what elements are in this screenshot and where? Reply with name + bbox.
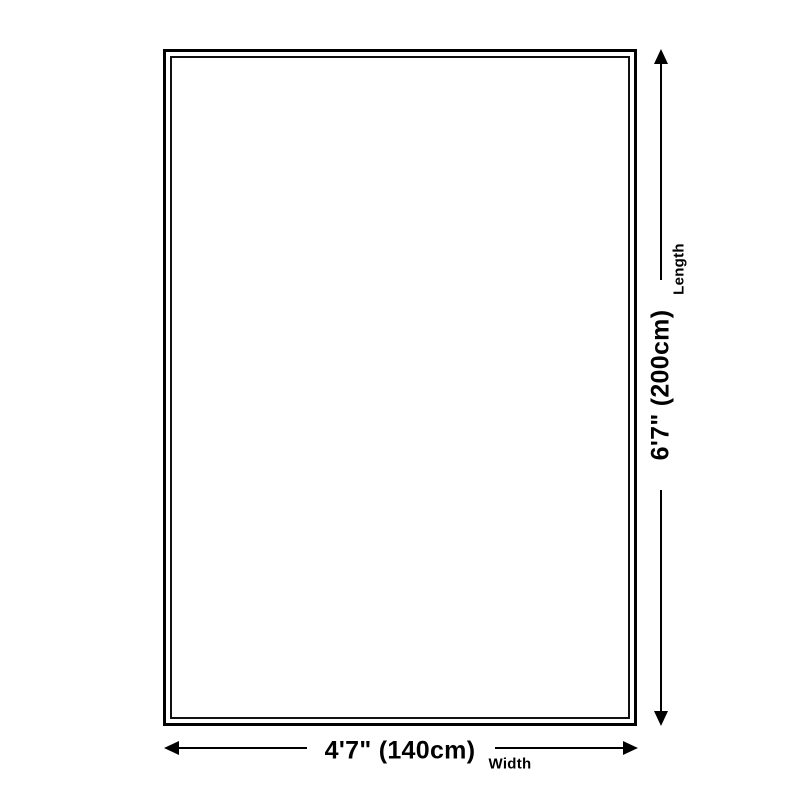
length-label: Length [671, 243, 688, 295]
arrow-right-icon [623, 741, 638, 755]
arrow-down-icon [654, 711, 668, 726]
product-outline-outer [163, 49, 637, 726]
length-value: 6'7" (200cm) [647, 310, 676, 461]
length-dimension-line-bottom [660, 490, 663, 712]
size-diagram: Length 6'7" (200cm) 4'7" (140cm) Width [0, 0, 800, 800]
length-dimension-line-top [660, 62, 663, 280]
arrow-left-icon [164, 741, 179, 755]
width-dimension-line-right [495, 747, 624, 750]
product-outline-inner [170, 56, 630, 719]
width-value: 4'7" (140cm) [325, 737, 476, 766]
width-label: Width [488, 756, 531, 773]
width-dimension-line-left [178, 747, 307, 750]
